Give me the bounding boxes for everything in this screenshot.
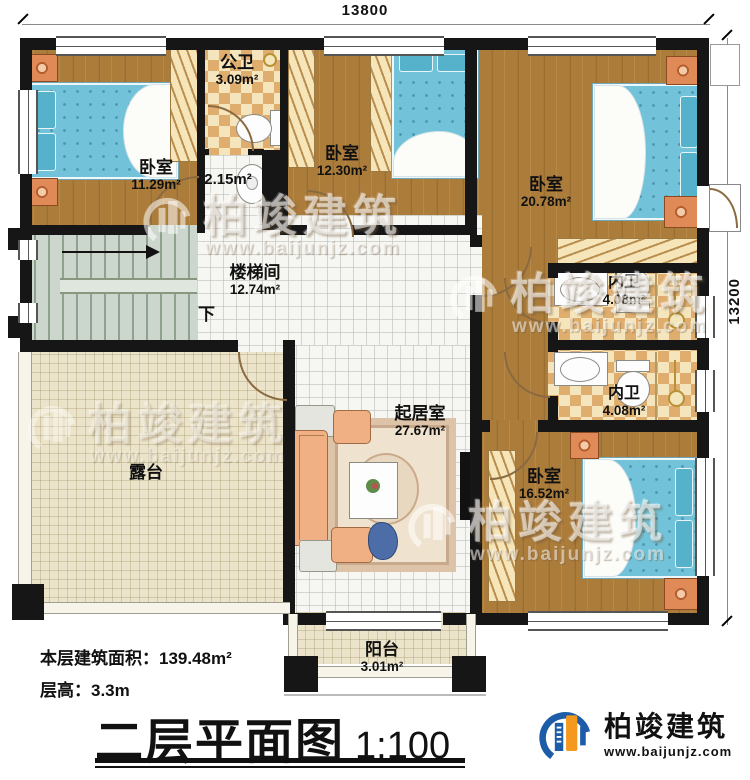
door-opening	[697, 186, 709, 228]
wardrobe	[370, 48, 394, 172]
pillow	[680, 96, 698, 148]
wall	[538, 420, 709, 432]
wall	[443, 613, 482, 625]
wall	[280, 225, 307, 235]
balcony-edge-line	[284, 694, 486, 696]
nightstand	[666, 56, 700, 85]
top-dimension-value: 13800	[300, 2, 430, 19]
brand-logo: 柏竣建筑 www.baijunjz.com	[538, 706, 732, 766]
stair-arrowhead-icon	[146, 245, 160, 259]
stair-down-label: 下	[198, 300, 215, 325]
toilet-bowl	[616, 371, 650, 407]
dimension-tick-icon	[17, 13, 28, 24]
armchair	[331, 527, 373, 563]
flower-icon	[372, 483, 378, 489]
exterior-ledge	[710, 44, 740, 86]
window	[695, 370, 715, 412]
sofa-cushions	[299, 435, 324, 540]
window	[528, 611, 668, 631]
bed	[30, 83, 178, 179]
bed-blanket	[594, 85, 646, 219]
wardrobe	[288, 48, 315, 168]
brand-url: www.baijunjz.com	[604, 744, 732, 759]
window	[56, 36, 166, 56]
wall	[20, 340, 238, 352]
brand-name: 柏竣建筑	[604, 713, 732, 741]
balcony-railing	[288, 614, 298, 658]
shower-rod	[674, 272, 676, 316]
wall	[352, 225, 477, 235]
bathroom-sink	[560, 357, 600, 382]
shower-divider	[655, 352, 657, 424]
pillow	[675, 520, 693, 568]
balcony-railing	[318, 666, 452, 678]
wall	[465, 38, 477, 235]
wall	[470, 295, 482, 625]
right-dimension-value: 13200	[726, 278, 743, 325]
window	[18, 303, 38, 323]
coffee-table	[349, 462, 398, 519]
pillow	[36, 91, 56, 129]
balcony-column	[284, 656, 318, 692]
terrace-column	[12, 584, 44, 620]
nightstand	[664, 196, 698, 228]
floor-height-text: 层高：3.3m	[40, 676, 130, 701]
armchair	[333, 410, 371, 444]
terrace-railing	[18, 352, 32, 608]
bathroom-sink	[560, 277, 600, 302]
shower-divider	[655, 266, 657, 338]
terrace-railing	[18, 602, 290, 614]
wall	[548, 263, 558, 278]
right-dimension-line	[727, 38, 728, 625]
title-underline	[95, 758, 465, 763]
sink-drain-icon	[246, 176, 258, 190]
toilet-bowl	[616, 268, 650, 304]
person-figure	[368, 522, 398, 560]
bed	[583, 458, 699, 578]
bed-blanket	[123, 84, 177, 178]
wardrobe	[170, 48, 199, 162]
shower-head-icon	[668, 312, 685, 329]
shower-head-icon	[668, 390, 685, 407]
nightstand	[664, 578, 698, 610]
balcony-column	[452, 656, 486, 692]
window	[528, 36, 656, 56]
wall	[470, 420, 490, 432]
floor-plan-page: 13800 13200	[0, 0, 750, 780]
towel-ring-icon	[263, 53, 277, 67]
brand-logo-icon	[538, 706, 596, 766]
bed-blanket	[584, 459, 636, 577]
sliding-door	[326, 611, 441, 631]
closet	[557, 238, 702, 266]
window	[18, 90, 38, 174]
top-dimension-line	[22, 24, 710, 25]
wall	[20, 225, 148, 235]
wall	[548, 340, 709, 350]
window	[18, 240, 38, 260]
window	[324, 36, 444, 56]
terrace-floor	[22, 345, 290, 612]
balcony-railing	[466, 614, 476, 658]
title-underline-thin	[95, 766, 465, 768]
wall	[470, 235, 482, 247]
wall	[548, 263, 709, 273]
dimension-tick-icon	[703, 13, 714, 24]
nightstand	[570, 432, 599, 459]
sofa	[290, 430, 328, 546]
stair-direction-arrow-icon	[62, 251, 148, 253]
pillow	[399, 54, 433, 72]
stair-landing-rail	[60, 278, 197, 294]
window	[695, 458, 715, 576]
shower-rod	[674, 360, 676, 394]
pillow	[675, 468, 693, 516]
toilet-tank	[616, 301, 650, 313]
window	[695, 296, 715, 338]
brand-text: 柏竣建筑 www.baijunjz.com	[604, 713, 732, 759]
building-area-text: 本层建筑面积：139.48m²	[40, 644, 232, 669]
wall	[262, 150, 288, 230]
pillow	[36, 133, 56, 171]
